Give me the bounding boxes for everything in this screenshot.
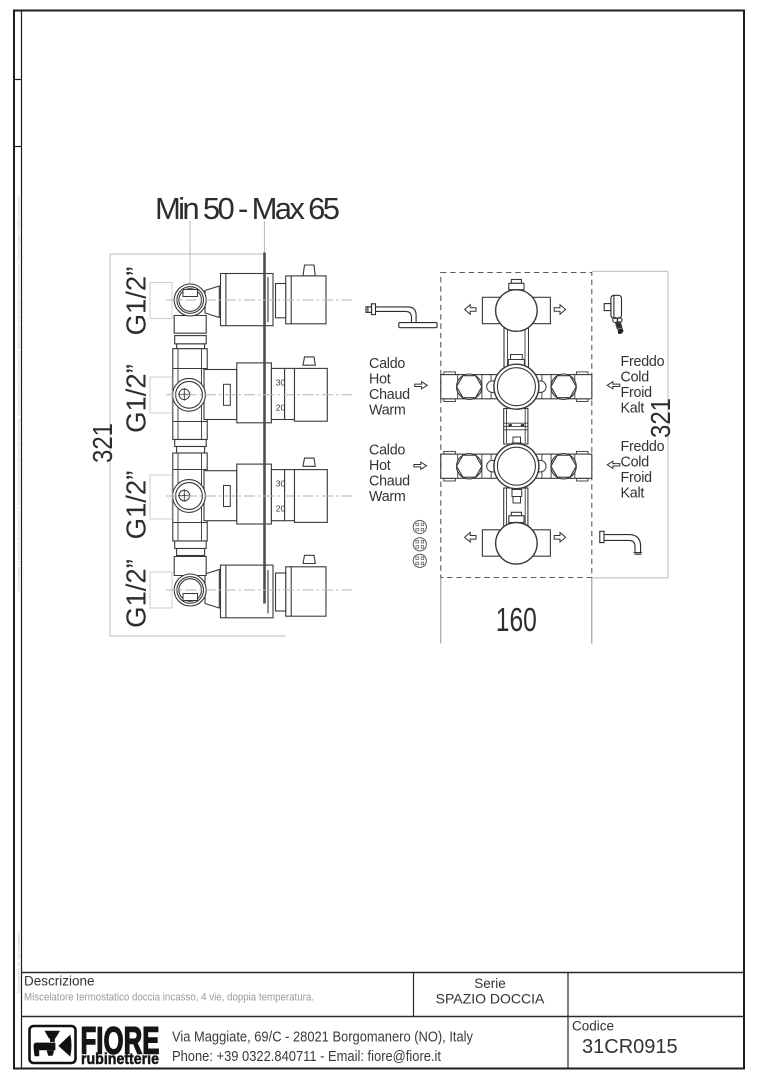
svg-text:CaldoHotChaudWarm: CaldoHotChaudWarm [369,356,410,419]
svg-text:G1/2”: G1/2” [121,267,152,336]
svg-text:Miscelatore termostatico docci: Miscelatore termostatico doccia incasso,… [24,992,314,1004]
svg-text:20: 20 [276,403,286,413]
svg-text:G1/2”: G1/2” [121,471,152,540]
svg-text:G1/2”: G1/2” [121,559,152,628]
svg-text:Il presente disegno e di propr: Il presente disegno e di proprieta della… [17,195,21,592]
svg-text:30: 30 [276,479,286,489]
svg-text:G1/2”: G1/2” [121,364,152,433]
svg-text:Min 50 - Max 65: Min 50 - Max 65 [155,191,340,226]
svg-text:Descrizione: Descrizione [24,974,95,989]
svg-text:Codice: Codice [572,1019,614,1034]
svg-text:rubinetterie: rubinetterie [81,1051,159,1068]
svg-text:Via Maggiate, 69/C - 28021 Bor: Via Maggiate, 69/C - 28021 Borgomanero (… [172,1029,473,1046]
svg-text:31CR0915: 31CR0915 [582,1036,678,1058]
svg-text:160: 160 [496,601,537,638]
svg-text:321: 321 [645,398,676,438]
svg-text:Phone: +39 0322.840711 - Email: Phone: +39 0322.840711 - Email: fiore@fi… [172,1048,442,1065]
svg-text:CaldoHotChaudWarm: CaldoHotChaudWarm [369,443,410,506]
svg-text:30: 30 [276,378,286,388]
svg-text:SPAZIO DOCCIA: SPAZIO DOCCIA [436,991,545,1007]
svg-text:321: 321 [87,423,118,463]
svg-text:Serie: Serie [474,976,506,991]
svg-text:20: 20 [276,504,286,514]
svg-text:Misure espresse in mm - Dati n: Misure espresse in mm - Dati non impegna… [17,932,21,993]
